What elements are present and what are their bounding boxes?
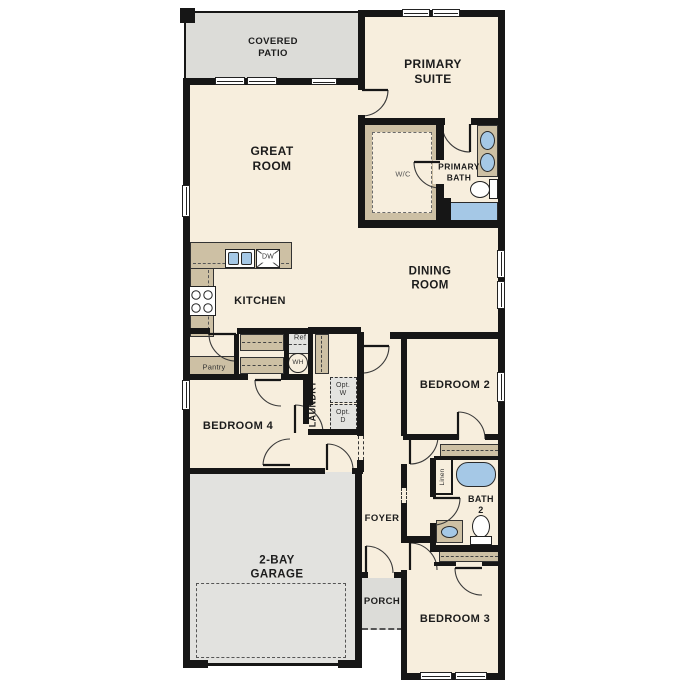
label-primary-bath: PRIMARYBATH (438, 161, 480, 182)
door-swing-arc (362, 346, 389, 373)
window-mullion (501, 374, 502, 400)
label-linen: Linen (439, 469, 447, 486)
door-swing-arc (433, 498, 460, 525)
label-bath-2: BATH2 (468, 494, 494, 517)
wall-segment (498, 10, 505, 680)
wall-segment (352, 468, 363, 474)
window (182, 185, 190, 217)
window (247, 77, 277, 85)
wall-segment (485, 434, 502, 440)
window (497, 372, 505, 402)
wall-segment (401, 464, 407, 488)
wall-segment (436, 123, 444, 160)
wall-segment (308, 327, 361, 334)
wall-segment (403, 673, 505, 680)
window (402, 9, 430, 17)
window (497, 250, 505, 278)
wall-segment (357, 332, 364, 346)
wall-segment (237, 328, 313, 334)
wall-segment (401, 332, 407, 436)
wall-segment (183, 374, 248, 380)
window-mullion (501, 252, 502, 276)
label-opt-w: Opt.W (336, 382, 350, 398)
label-foyer: FOYER (365, 513, 400, 525)
wall-segment (403, 434, 459, 440)
window-mullion (501, 283, 502, 307)
floor-plan: COVEREDPATIO PRIMARYSUITE GREATROOM W/C … (0, 0, 687, 687)
label-wh: WH (292, 359, 303, 367)
label-great-room: GREATROOM (250, 144, 293, 174)
label-bedroom-4: BEDROOM 4 (203, 420, 273, 434)
door-swing-arc (366, 546, 393, 573)
window (182, 380, 190, 410)
wall-segment (471, 118, 505, 125)
wall-segment (430, 458, 436, 497)
label-dining-room: DININGROOM (409, 265, 452, 294)
window-mullion (186, 382, 187, 408)
label-covered-patio: COVEREDPATIO (248, 36, 298, 60)
label-garage: 2-BAYGARAGE (251, 554, 304, 583)
wall-segment (183, 78, 190, 668)
window-mullion (249, 81, 275, 82)
window-mullion (422, 676, 450, 677)
window (455, 672, 487, 680)
door-swing-arc (255, 380, 281, 406)
wall-segment (394, 572, 404, 578)
wall-segment (358, 10, 365, 90)
wall-segment (234, 334, 239, 378)
wall-segment (401, 570, 407, 680)
label-bedroom-2: BEDROOM 2 (420, 379, 490, 393)
wall-segment (358, 115, 365, 222)
wall-segment (401, 503, 407, 537)
door-swing-arc (455, 568, 482, 595)
label-opt-d: Opt.D (336, 409, 350, 425)
window-mullion (434, 13, 458, 14)
label-pantry: Pantry (203, 362, 226, 371)
window (432, 9, 460, 17)
wall-segment (430, 523, 436, 545)
opening-marker (401, 488, 407, 503)
wall-segment (434, 562, 456, 566)
wall-segment (358, 220, 505, 228)
door-swing-arc (362, 90, 388, 116)
wall-segment (430, 545, 502, 552)
door-swing-arc (442, 124, 470, 152)
door-swings-layer (0, 0, 687, 687)
wall-segment (183, 328, 210, 334)
wall-segment (358, 572, 368, 578)
wall-segment (355, 468, 362, 668)
window-mullion (457, 676, 485, 677)
label-wic: W/C (395, 169, 410, 178)
window-mullion (313, 82, 335, 83)
opening-marker (358, 436, 364, 460)
wall-segment (358, 118, 445, 125)
wall-segment (308, 429, 363, 435)
window (497, 281, 505, 309)
label-primary-suite: PRIMARYSUITE (404, 57, 462, 87)
door-swing-arc (263, 439, 290, 465)
label-porch: PORCH (364, 596, 400, 608)
wall-segment (434, 456, 502, 460)
door-swing-arc (327, 444, 353, 470)
label-dw: DW (261, 254, 275, 263)
window-mullion (186, 187, 187, 215)
wall-segment (357, 346, 364, 436)
label-bedroom-3: BEDROOM 3 (420, 613, 490, 627)
door-swing-arc (209, 334, 236, 361)
wall-segment (183, 468, 325, 474)
window (311, 78, 337, 85)
window (215, 77, 245, 85)
window (420, 672, 452, 680)
wall-segment (284, 334, 289, 378)
door-swing-arc (458, 412, 485, 439)
wall-segment (308, 334, 313, 405)
wall-segment (205, 663, 340, 666)
window-mullion (217, 81, 243, 82)
label-kitchen: KITCHEN (234, 295, 286, 309)
wall-segment (482, 562, 502, 566)
wall-segment (443, 198, 451, 222)
window-mullion (404, 13, 428, 14)
